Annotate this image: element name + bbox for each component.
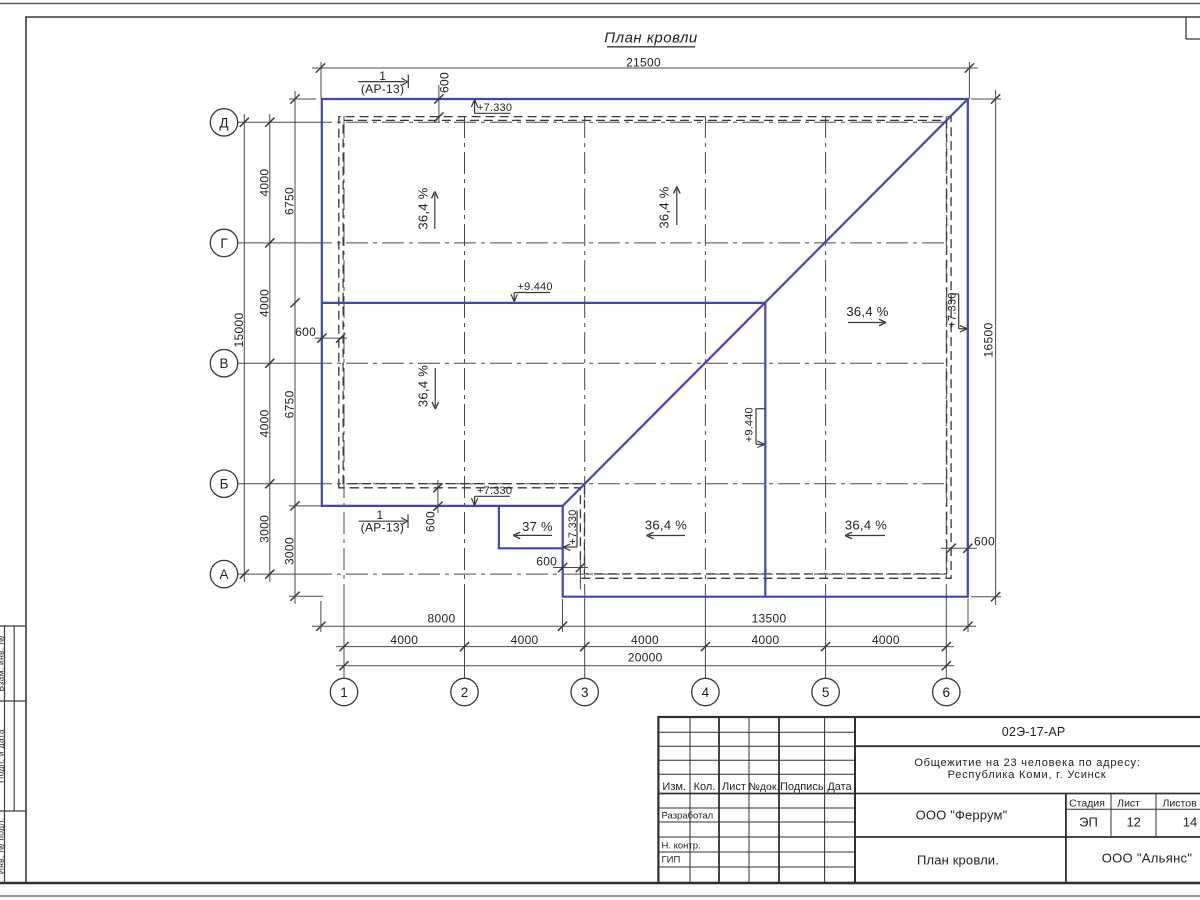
svg-text:Стадия: Стадия	[1069, 797, 1105, 809]
svg-text:36,4 %: 36,4 %	[416, 365, 431, 407]
svg-text:36,4 %: 36,4 %	[846, 304, 888, 319]
svg-text:36,4 %: 36,4 %	[645, 517, 687, 532]
svg-text:Листов: Листов	[1163, 797, 1198, 809]
svg-text:36,4 %: 36,4 %	[416, 187, 431, 229]
svg-text:Взам. инв. №: Взам. инв. №	[0, 635, 6, 691]
svg-text:13500: 13500	[752, 612, 787, 626]
svg-text:В: В	[219, 356, 228, 371]
svg-text:ООО "Альянс": ООО "Альянс"	[1102, 851, 1193, 866]
svg-text:Республика Коми, г. Усинск: Республика Коми, г. Усинск	[948, 769, 1107, 781]
svg-text:Лист: Лист	[722, 781, 746, 793]
svg-text:600: 600	[295, 325, 316, 339]
svg-text:+7.330: +7.330	[477, 102, 512, 114]
svg-text:Лист: Лист	[1117, 797, 1140, 809]
svg-text:Общежитие на 23 человека по ад: Общежитие на 23 человека по адресу:	[914, 757, 1140, 769]
svg-text:4000: 4000	[511, 633, 539, 647]
svg-text:4000: 4000	[752, 633, 780, 647]
svg-text:(АР-13): (АР-13)	[361, 521, 404, 535]
svg-text:4000: 4000	[872, 633, 900, 647]
svg-text:4000: 4000	[390, 633, 418, 647]
svg-text:20000: 20000	[628, 651, 663, 665]
svg-text:21500: 21500	[626, 55, 661, 69]
svg-text:3000: 3000	[283, 537, 297, 565]
svg-text:+7.330: +7.330	[946, 292, 958, 327]
svg-text:Разработал: Разработал	[662, 811, 714, 822]
svg-text:6750: 6750	[283, 390, 297, 418]
svg-text:2: 2	[461, 685, 469, 700]
svg-text:Инв. № подл.: Инв. № подл.	[0, 818, 6, 875]
svg-text:(АР-13): (АР-13)	[361, 82, 404, 96]
svg-text:3: 3	[581, 685, 589, 700]
svg-text:Изм.: Изм.	[662, 781, 686, 793]
svg-text:Г: Г	[220, 236, 228, 251]
svg-text:600: 600	[424, 511, 438, 532]
svg-text:1: 1	[379, 69, 386, 83]
svg-text:14: 14	[1183, 815, 1197, 830]
svg-text:+7.330: +7.330	[567, 509, 579, 544]
svg-text:4000: 4000	[257, 169, 271, 197]
svg-text:02Э-17-АР: 02Э-17-АР	[1002, 725, 1066, 739]
svg-text:№док.: №док.	[749, 781, 780, 793]
svg-text:8000: 8000	[428, 612, 456, 626]
svg-text:600: 600	[536, 554, 557, 568]
svg-text:600: 600	[974, 534, 995, 548]
svg-text:4000: 4000	[631, 633, 659, 647]
svg-text:12: 12	[1126, 815, 1140, 830]
svg-text:Подп. и дата: Подп. и дата	[0, 729, 6, 783]
svg-text:5: 5	[822, 685, 830, 700]
svg-text:План кровли: План кровли	[604, 30, 698, 47]
svg-text:Подпись: Подпись	[780, 781, 824, 793]
svg-text:37 %: 37 %	[522, 519, 553, 534]
svg-text:36,4 %: 36,4 %	[657, 186, 672, 228]
svg-text:+9.440: +9.440	[518, 281, 553, 293]
svg-text:Б: Б	[220, 477, 229, 492]
svg-text:+7.330: +7.330	[477, 485, 512, 497]
svg-text:1: 1	[340, 685, 348, 700]
svg-text:16500: 16500	[982, 323, 996, 358]
svg-text:36,4 %: 36,4 %	[845, 517, 887, 532]
svg-text:Дата: Дата	[827, 781, 852, 793]
svg-text:4: 4	[702, 685, 710, 700]
svg-text:ООО "Феррум": ООО "Феррум"	[916, 808, 1008, 823]
svg-text:А: А	[219, 567, 228, 582]
svg-text:Н. контр.: Н. контр.	[662, 841, 701, 852]
svg-text:6: 6	[943, 685, 951, 700]
svg-text:4000: 4000	[257, 289, 271, 317]
svg-text:Кол.: Кол.	[694, 781, 716, 793]
svg-text:План кровли.: План кровли.	[917, 853, 999, 868]
svg-text:ЭП: ЭП	[1079, 815, 1098, 830]
svg-text:+9.440: +9.440	[744, 407, 756, 442]
svg-text:15000: 15000	[232, 313, 246, 348]
svg-text:6750: 6750	[283, 187, 297, 215]
svg-text:Д: Д	[219, 115, 228, 130]
svg-text:ГИП: ГИП	[662, 855, 681, 866]
svg-text:4000: 4000	[257, 409, 271, 437]
svg-text:600: 600	[437, 72, 451, 93]
svg-text:3000: 3000	[257, 515, 271, 543]
